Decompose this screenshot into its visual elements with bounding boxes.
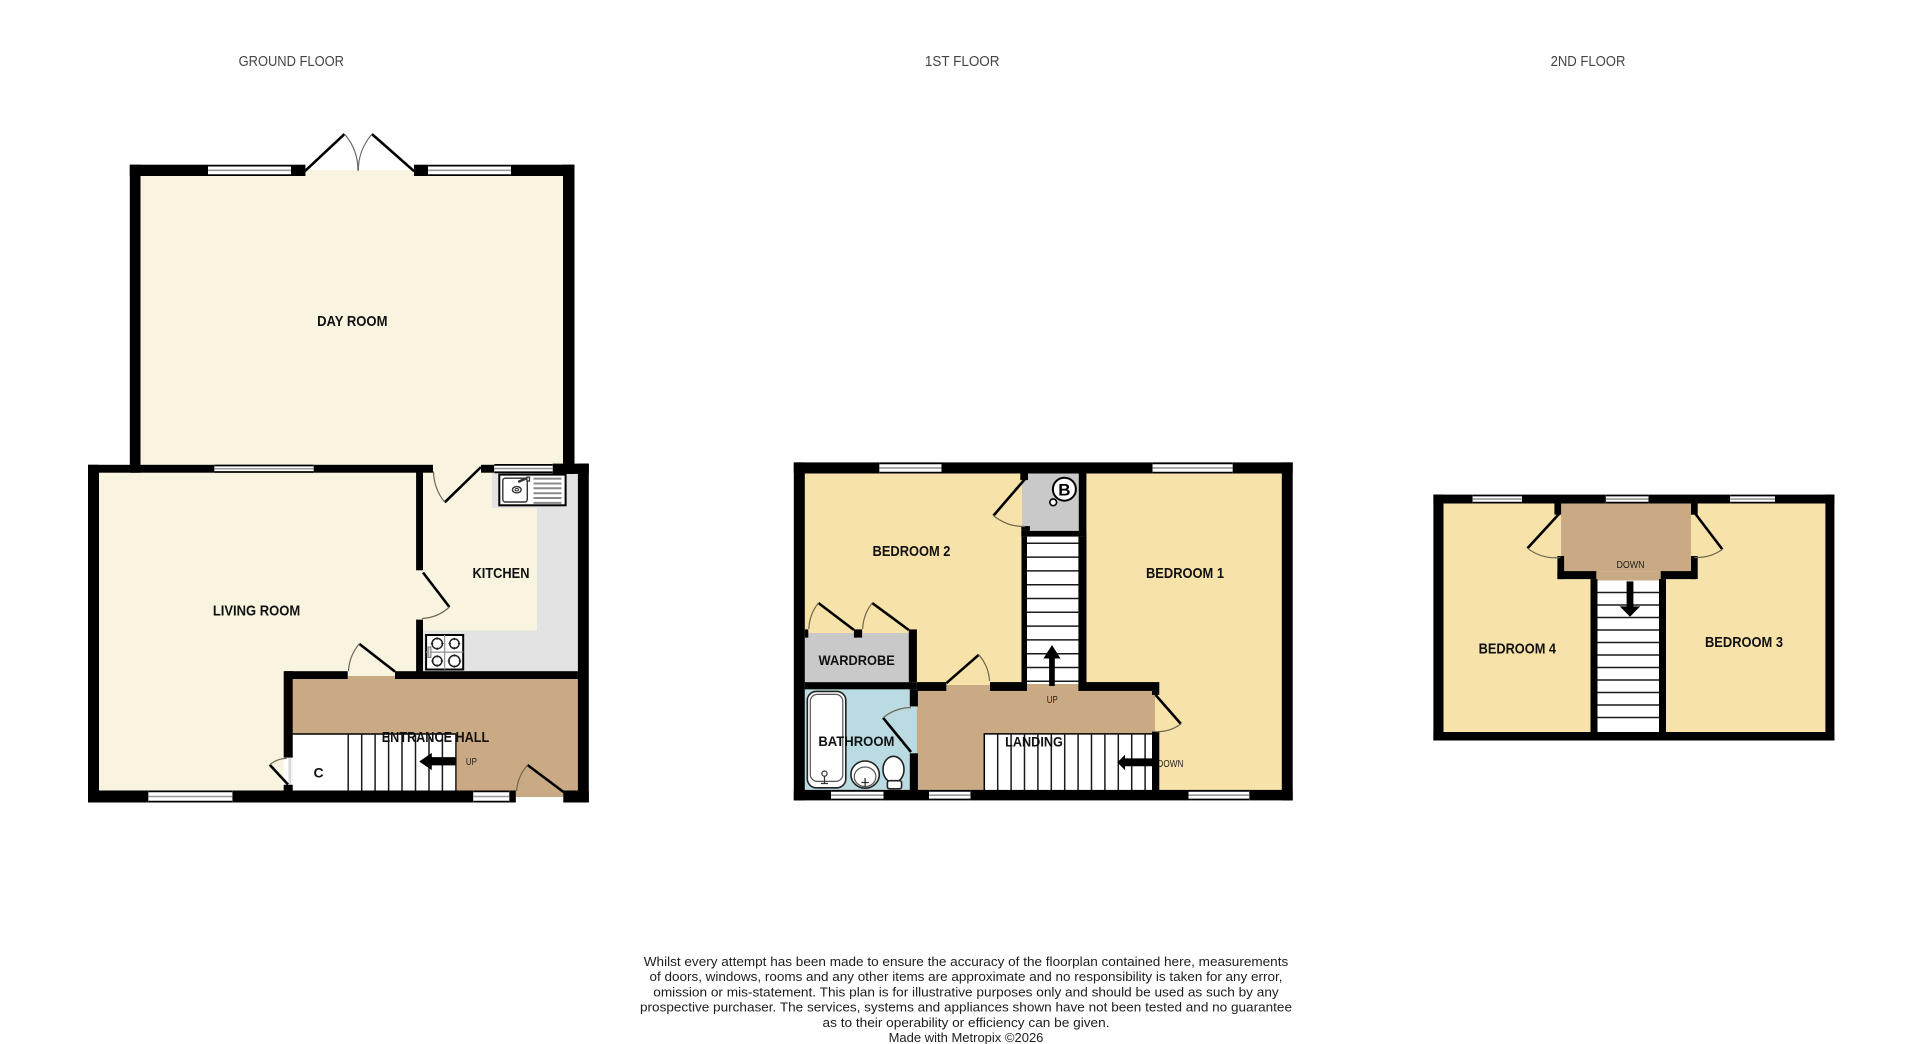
svg-text:as to their operability or eff: as to their operability or efficiency ca… (823, 1015, 1110, 1030)
svg-text:Whilst every attempt has been: Whilst every attempt has been made to en… (644, 954, 1289, 969)
svg-text:omission or mis-statement. Thi: omission or mis-statement. This plan is … (653, 984, 1279, 999)
svg-text:prospective purchaser. The ser: prospective purchaser. The services, sys… (640, 1000, 1292, 1015)
svg-text:ENTRANCE HALL: ENTRANCE HALL (382, 729, 490, 746)
svg-text:DOWN: DOWN (1617, 560, 1645, 571)
svg-text:BEDROOM 4: BEDROOM 4 (1479, 641, 1557, 658)
svg-text:GROUND FLOOR: GROUND FLOOR (239, 53, 345, 70)
svg-text:DAY ROOM: DAY ROOM (317, 313, 387, 330)
svg-text:KITCHEN: KITCHEN (473, 565, 530, 582)
svg-text:2ND FLOOR: 2ND FLOOR (1551, 53, 1626, 70)
svg-text:DOWN: DOWN (1157, 759, 1183, 770)
svg-text:B: B (1058, 480, 1070, 499)
svg-text:LANDING: LANDING (1005, 734, 1063, 750)
svg-text:of doors, windows, rooms and a: of doors, windows, rooms and any other i… (650, 969, 1283, 984)
svg-text:BEDROOM 3: BEDROOM 3 (1705, 634, 1783, 651)
svg-text:C: C (314, 764, 324, 780)
svg-text:UP: UP (1047, 695, 1058, 706)
svg-text:1ST FLOOR: 1ST FLOOR (925, 53, 1000, 70)
svg-text:Made with Metropix ©2026: Made with Metropix ©2026 (889, 1030, 1044, 1044)
svg-text:UP: UP (466, 757, 477, 768)
svg-text:LIVING ROOM: LIVING ROOM (213, 603, 300, 620)
svg-text:BATHROOM: BATHROOM (818, 733, 894, 749)
svg-text:BEDROOM 1: BEDROOM 1 (1146, 565, 1224, 582)
svg-text:WARDROBE: WARDROBE (819, 652, 895, 668)
svg-text:BEDROOM 2: BEDROOM 2 (873, 543, 951, 560)
